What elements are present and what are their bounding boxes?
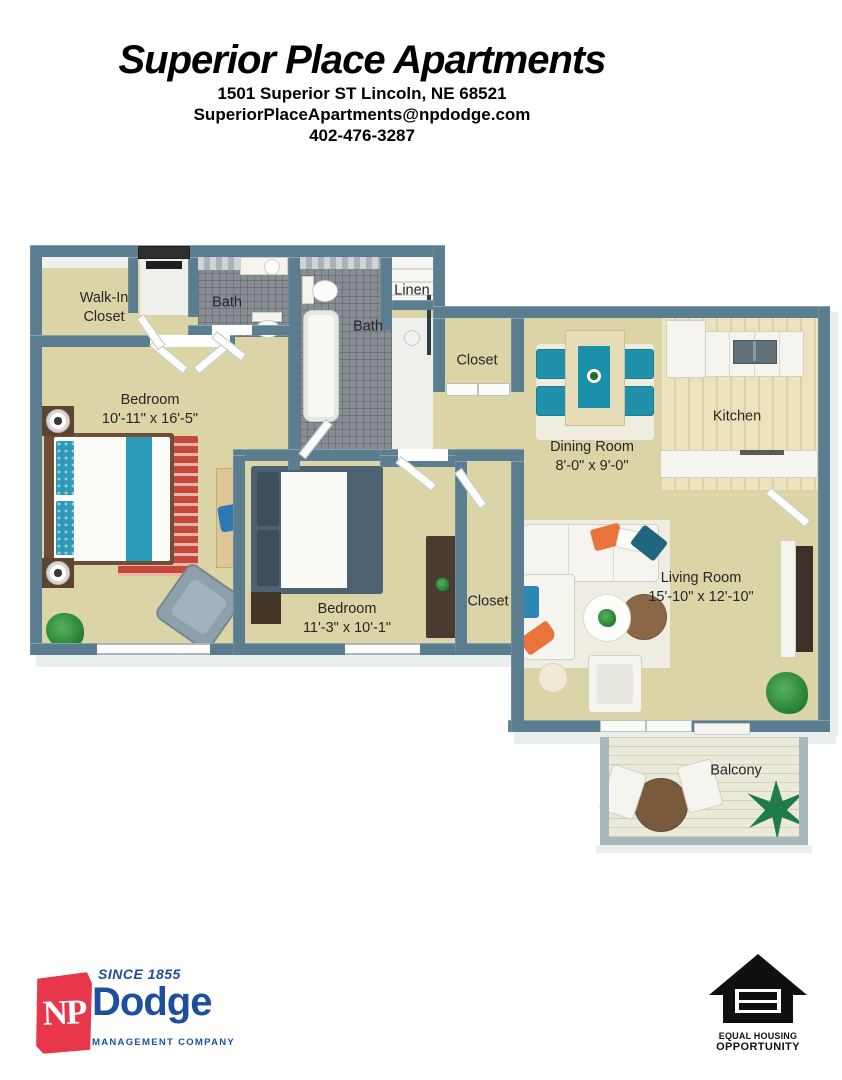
centerpiece <box>587 369 601 383</box>
pillow <box>56 501 74 555</box>
bedroom-2-bed <box>251 466 383 594</box>
room-label-bedroom-2: Bedroom 11'-3" x 10'-1" <box>303 600 391 638</box>
accent-chair <box>588 655 642 713</box>
bedroom-1-bed <box>44 433 174 565</box>
room-name: Bedroom <box>303 600 391 619</box>
pillow <box>257 530 279 586</box>
email-line: SuperiorPlaceApartments@npdodge.com <box>0 104 724 125</box>
armchair-cushion <box>170 578 228 636</box>
balcony-rail <box>799 737 808 845</box>
hall-closet-sliding-doors <box>446 383 510 396</box>
management-company-text: MANAGEMENT COMPANY <box>92 1037 235 1048</box>
bedroom-1-window <box>97 643 210 655</box>
wall <box>288 257 300 470</box>
foundation-shadow <box>596 845 812 853</box>
balcony-sliding-door <box>600 720 692 732</box>
balcony-rail <box>600 737 609 845</box>
room-name: Closet <box>456 351 497 370</box>
room-label-linen: Linen <box>394 281 429 300</box>
page-title: Superior Place Apartments <box>0 38 724 83</box>
room-name: Bedroom <box>102 391 198 410</box>
wall <box>30 245 42 655</box>
wall <box>233 449 398 461</box>
room-label-dining-room: Dining Room 8'-0" x 9'-0" <box>550 438 634 476</box>
nightstand <box>251 592 281 624</box>
door-mat <box>146 261 182 269</box>
wall <box>392 300 433 310</box>
room-label-closet-2: Closet <box>467 592 508 611</box>
np-flag-icon: NP <box>34 972 95 1054</box>
room-dimensions: 8'-0" x 9'-0" <box>550 457 634 476</box>
slider-seam <box>645 721 647 731</box>
bath-2-sink <box>404 330 420 346</box>
address-line: 1501 Superior ST Lincoln, NE 68521 <box>0 83 724 104</box>
wall <box>433 318 445 392</box>
wall <box>128 257 138 313</box>
room-label-living-room: Living Room 15'-10" x 12'-10" <box>648 569 753 607</box>
foundation-shadow <box>36 655 528 667</box>
dresser-plant <box>436 578 449 591</box>
room-name: Linen <box>394 281 429 300</box>
room-name: Balcony <box>710 761 762 780</box>
flyer-page: Superior Place Apartments 1501 Superior … <box>0 0 842 1080</box>
room-label-hall-closet: Closet <box>456 351 497 370</box>
room-dimensions: 15'-10" x 12'-10" <box>648 588 753 607</box>
room-dimensions: 11'-3" x 10'-1" <box>303 619 391 638</box>
room-dimensions: 10'-11" x 16'-5" <box>102 410 198 429</box>
pillow <box>257 472 279 526</box>
front-door <box>138 246 190 259</box>
slider-seam <box>477 384 479 395</box>
dining-chair <box>536 386 568 416</box>
room-name: Bath <box>212 293 242 312</box>
wall <box>233 455 245 655</box>
dining-chair <box>622 386 654 416</box>
equal-housing-logo: EQUAL HOUSING OPPORTUNITY <box>703 953 813 1053</box>
kitchen-counter-bottom <box>660 450 818 478</box>
balcony-rail <box>600 837 808 845</box>
side-table <box>538 663 568 693</box>
refrigerator <box>666 320 706 378</box>
bath-1-sink <box>264 259 280 275</box>
chair-cushion <box>597 664 633 704</box>
kitchen-sink <box>733 340 777 364</box>
room-name: Living Room <box>648 569 753 588</box>
stove <box>740 450 784 455</box>
room-name: Closet <box>467 592 508 611</box>
bedroom-2-window <box>345 643 420 655</box>
bath-2-toilet-bowl <box>312 280 338 302</box>
bed-runner <box>126 437 152 561</box>
room-name: Kitchen <box>713 407 761 426</box>
room-label-bath-2: Bath <box>353 317 383 336</box>
tv-console <box>796 546 813 652</box>
np-initials: NP <box>42 992 86 1033</box>
bath-2-tub <box>303 310 339 422</box>
sink-divider <box>753 341 756 361</box>
room-name: Walk-In <box>80 289 129 308</box>
lamp <box>46 409 70 433</box>
equal-housing-house-icon <box>708 953 808 1025</box>
walk-in-shelf <box>42 257 128 268</box>
mattress <box>281 472 347 588</box>
dining-table <box>565 330 625 426</box>
wall <box>433 306 830 318</box>
phone-line: 402-476-3287 <box>0 125 724 146</box>
room-name: Bath <box>353 317 383 336</box>
room-label-walk-in-closet: Walk-In Closet <box>80 289 129 327</box>
room-label-bedroom-1: Bedroom 10'-11" x 16'-5" <box>102 391 198 429</box>
room-label-balcony: Balcony <box>710 761 762 780</box>
balcony-threshold <box>694 723 750 735</box>
opportunity-text: OPPORTUNITY <box>703 1041 813 1053</box>
lamp <box>46 561 70 585</box>
dining-chair <box>622 349 654 379</box>
dining-chair <box>536 349 568 379</box>
wall <box>188 257 198 317</box>
media-shelf <box>780 540 796 658</box>
equal-housing-text: EQUAL HOUSING <box>703 1031 813 1041</box>
wall <box>511 318 524 392</box>
wall <box>30 245 445 257</box>
header: Superior Place Apartments 1501 Superior … <box>0 38 724 146</box>
dodge-wordmark: Dodge <box>92 982 211 1022</box>
plant <box>766 672 808 714</box>
room-label-kitchen: Kitchen <box>713 407 761 426</box>
coffee-table <box>583 594 631 642</box>
wall <box>818 306 830 732</box>
wall <box>511 461 524 732</box>
table-plant <box>598 609 616 627</box>
bath-2-tile-wall <box>300 257 380 269</box>
foundation-shadow <box>830 312 838 736</box>
room-label-bath-1: Bath <box>212 293 242 312</box>
room-name: Closet <box>80 308 129 327</box>
pillow <box>56 441 74 495</box>
room-name: Dining Room <box>550 438 634 457</box>
